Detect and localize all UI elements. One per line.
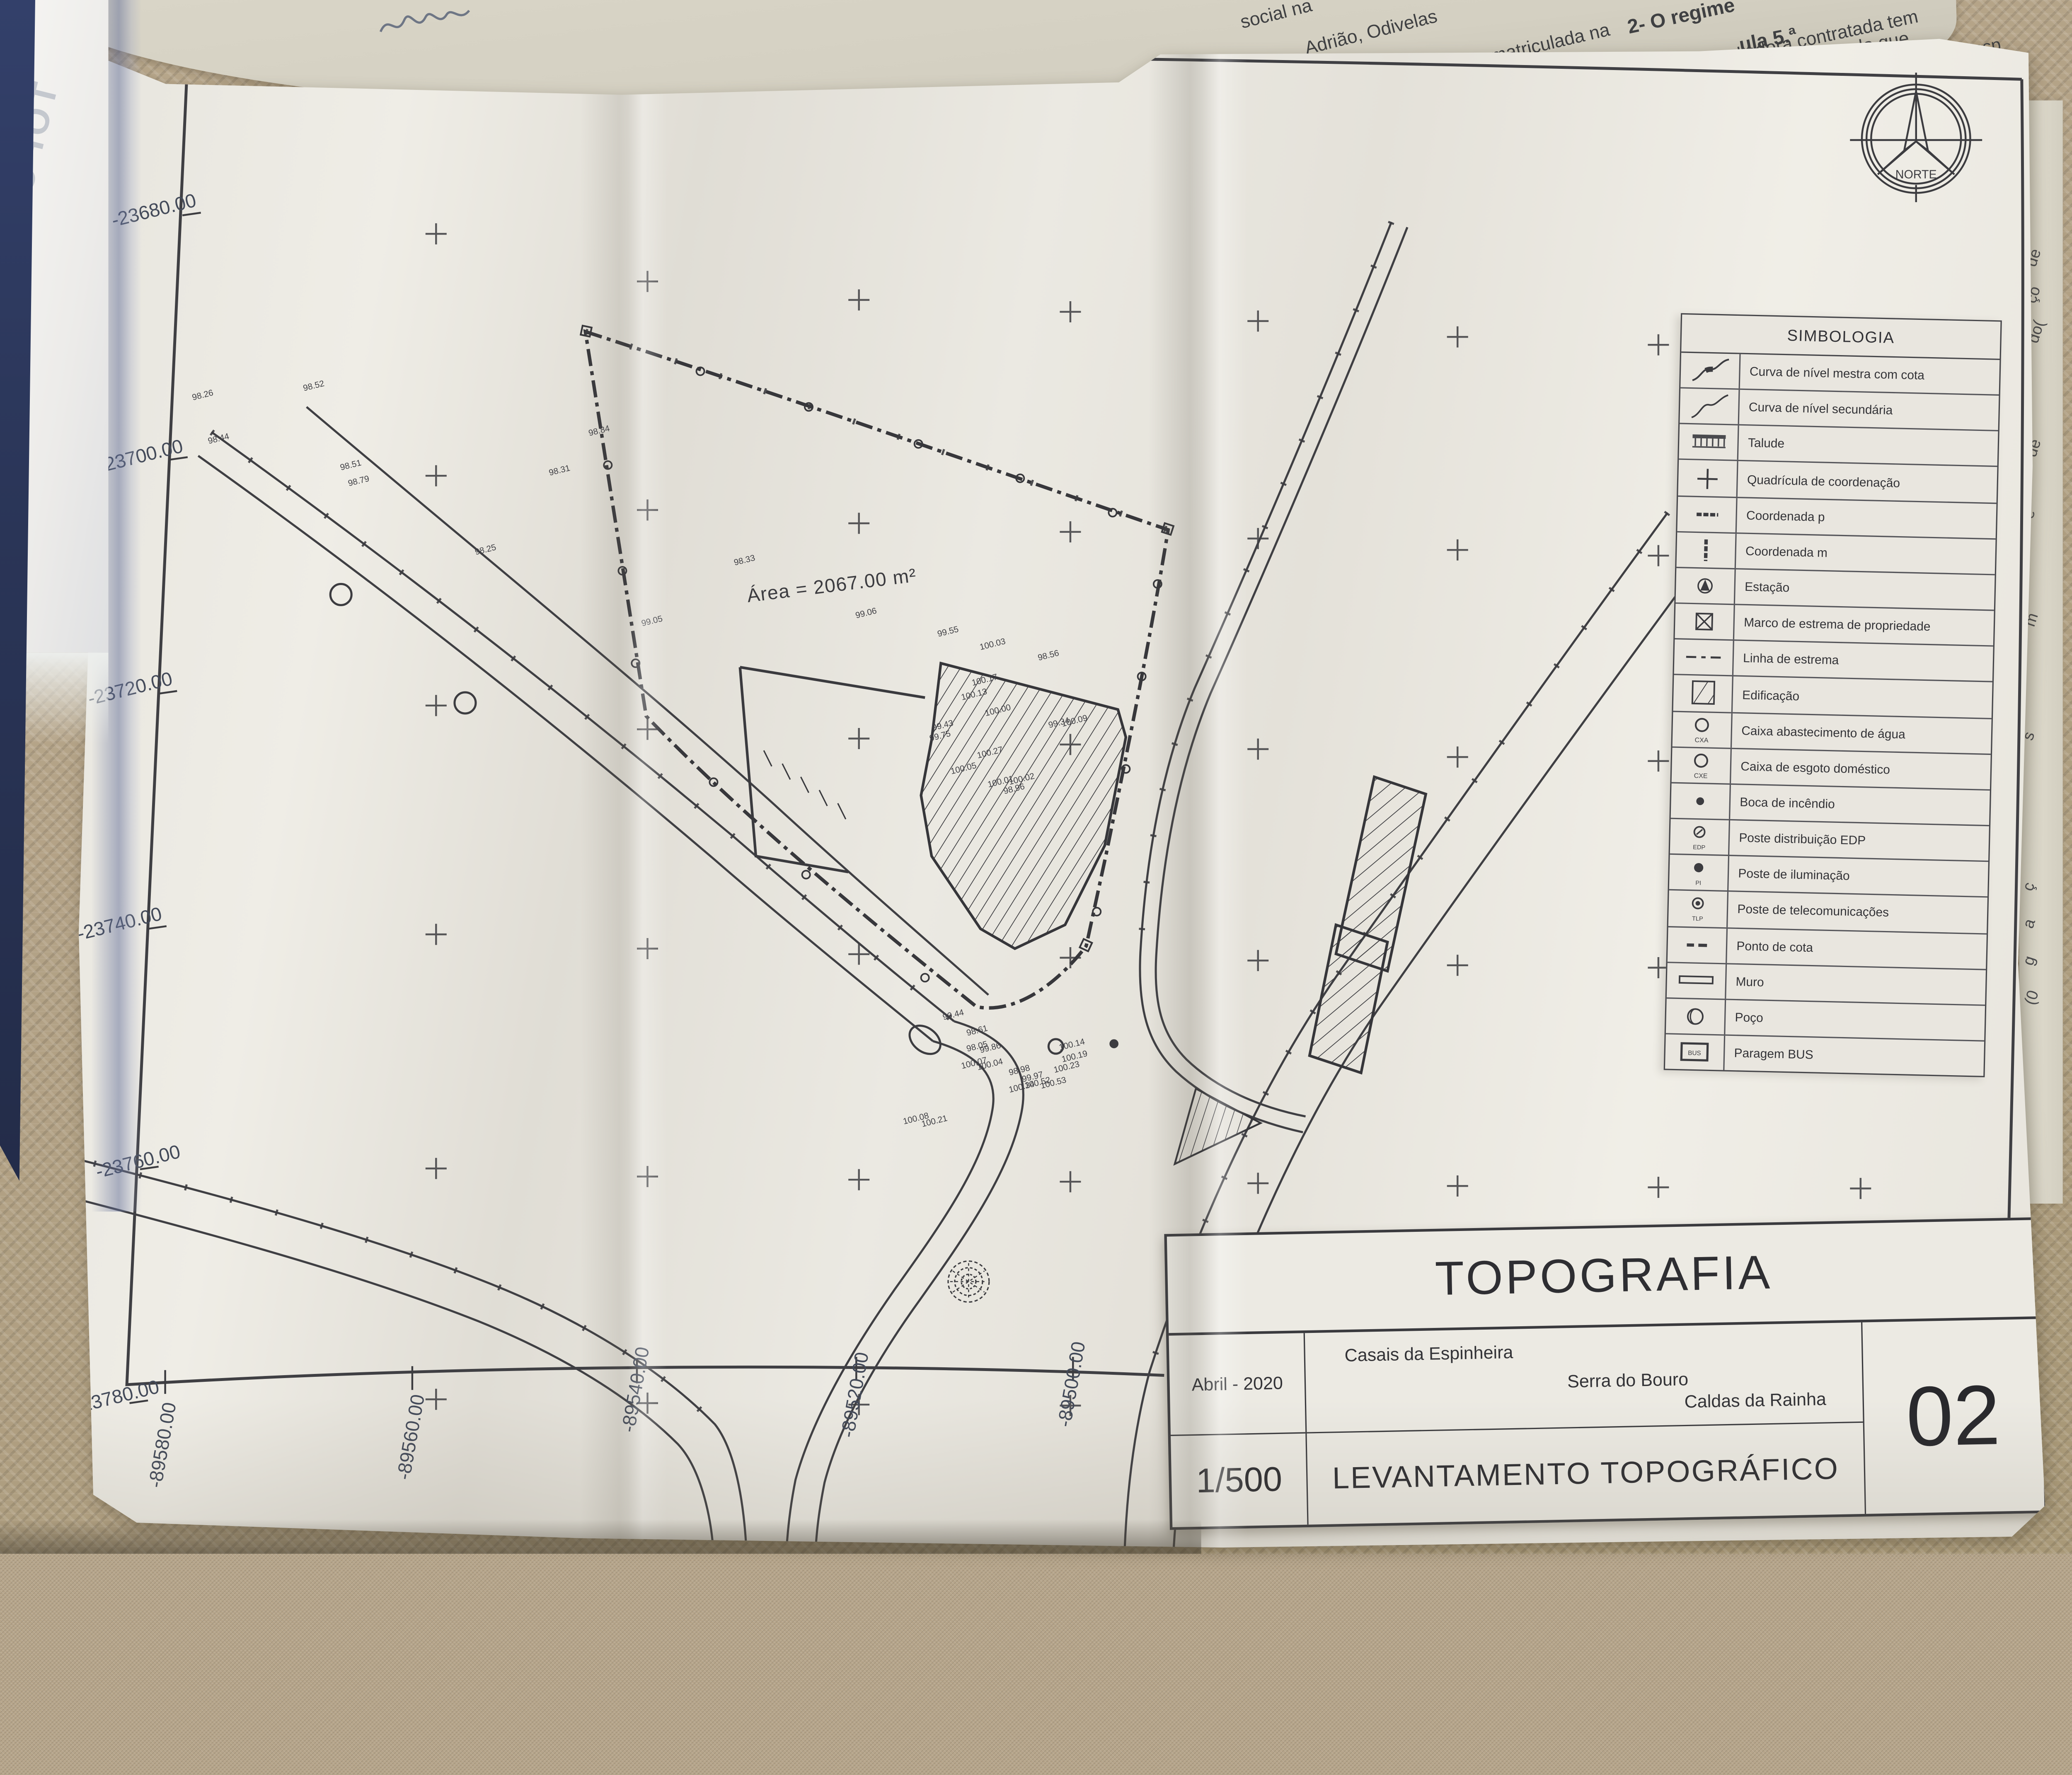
telecom-pole-icon: TLP bbox=[1668, 891, 1728, 927]
svg-text:TLP: TLP bbox=[1692, 916, 1703, 923]
legend-item-label: Coordenada p bbox=[1737, 498, 1997, 538]
bus-stop-icon: BUS bbox=[1665, 1034, 1725, 1070]
svg-text:BUS: BUS bbox=[1688, 1050, 1701, 1057]
drawing-title: TOPOGRAFIA bbox=[1167, 1220, 2041, 1335]
north-arrow-icon: NORTE bbox=[1842, 65, 1990, 228]
boundary-line-icon bbox=[1674, 640, 1734, 676]
photo-of-topographic-plan: social naAdrião, Odivelas15362107, matri… bbox=[0, 0, 2072, 1554]
station-icon bbox=[1675, 568, 1736, 604]
place-locality: Casais da Espinheira bbox=[1344, 1342, 1513, 1366]
curve-master-icon bbox=[1680, 353, 1740, 389]
legend-item-label: Poste distribuição EDP bbox=[1729, 820, 1989, 861]
place-parish: Serra do Bouro bbox=[1567, 1369, 1689, 1391]
hydrant-icon bbox=[1671, 783, 1731, 819]
legend-item-label: Boca de incêndio bbox=[1730, 785, 1990, 825]
legend-item-label: Talude bbox=[1738, 426, 1998, 467]
legend-item-label: Curva de nível secundária bbox=[1739, 390, 1999, 430]
legend-rows: Curva de nível mestra com cotaCurva de n… bbox=[1665, 353, 2000, 1076]
legend-item-label: Poço bbox=[1725, 1000, 1985, 1040]
legend-item-label: Muro bbox=[1726, 964, 1986, 1004]
svg-text:CXE: CXE bbox=[1694, 772, 1708, 780]
svg-text:EDP: EDP bbox=[1693, 844, 1705, 851]
building-icon bbox=[1673, 676, 1733, 712]
survey-sheet-wrap: 98.4498.2698.5298.5198.7998.2598.3198.84… bbox=[0, 0, 2072, 1554]
legend-item-label: Curva de nível mestra com cota bbox=[1740, 354, 2000, 395]
legend-item-label: Caixa de esgoto doméstico bbox=[1731, 749, 1991, 789]
edp-pole-icon: EDP bbox=[1670, 819, 1730, 855]
legend-item-label: Poste de iluminação bbox=[1728, 856, 1988, 897]
coord-m-icon bbox=[1676, 532, 1736, 568]
legend-item-label: Estação bbox=[1735, 569, 1995, 610]
paper-crease bbox=[580, 0, 667, 1554]
svg-text:PI: PI bbox=[1695, 880, 1701, 887]
legend-item-label: Caixa abastecimento de água bbox=[1732, 713, 1992, 753]
wall-icon bbox=[1667, 962, 1727, 999]
sewer-box-icon: CXE bbox=[1672, 747, 1732, 784]
legend-title: SIMBOLOGIA bbox=[1681, 314, 2000, 360]
legend-item-label: Edificação bbox=[1733, 677, 1992, 718]
survey-sheet: 98.4498.2698.5298.5198.7998.2598.3198.84… bbox=[0, 0, 2072, 1554]
legend-item-label: Linha de estrema bbox=[1733, 641, 1993, 682]
curve-secondary-icon bbox=[1680, 389, 1740, 425]
legend-row: BUSParagem BUS bbox=[1665, 1034, 1984, 1076]
legend-item-label: Ponto de cota bbox=[1727, 928, 1987, 969]
water-box-icon: CXA bbox=[1673, 711, 1733, 747]
legend-item-label: Paragem BUS bbox=[1724, 1036, 1984, 1076]
legend-item-label: Coordenada m bbox=[1736, 534, 1996, 574]
legend-item-label: Poste de telecomunicações bbox=[1728, 892, 1987, 933]
spot-height-icon bbox=[1668, 927, 1728, 963]
svg-text:CXA: CXA bbox=[1694, 736, 1709, 744]
well-icon bbox=[1666, 999, 1726, 1035]
boundary-mark-icon bbox=[1675, 604, 1735, 640]
light-pole-icon: PI bbox=[1669, 855, 1729, 891]
paper-crease bbox=[1148, 0, 1247, 1554]
talude-icon bbox=[1679, 425, 1739, 461]
legend: SIMBOLOGIA Curva de nível mestra com cot… bbox=[1664, 313, 2002, 1077]
sheet-bottom-shadow bbox=[0, 1519, 1202, 1553]
coord-p-icon bbox=[1677, 496, 1737, 532]
north-label: NORTE bbox=[1895, 168, 1937, 181]
legend-item-label: Marco de estrema de propriedade bbox=[1734, 605, 1994, 646]
legend-item-label: Quadrícula de coordenação bbox=[1738, 462, 1997, 502]
grid-cross-icon bbox=[1678, 460, 1738, 496]
